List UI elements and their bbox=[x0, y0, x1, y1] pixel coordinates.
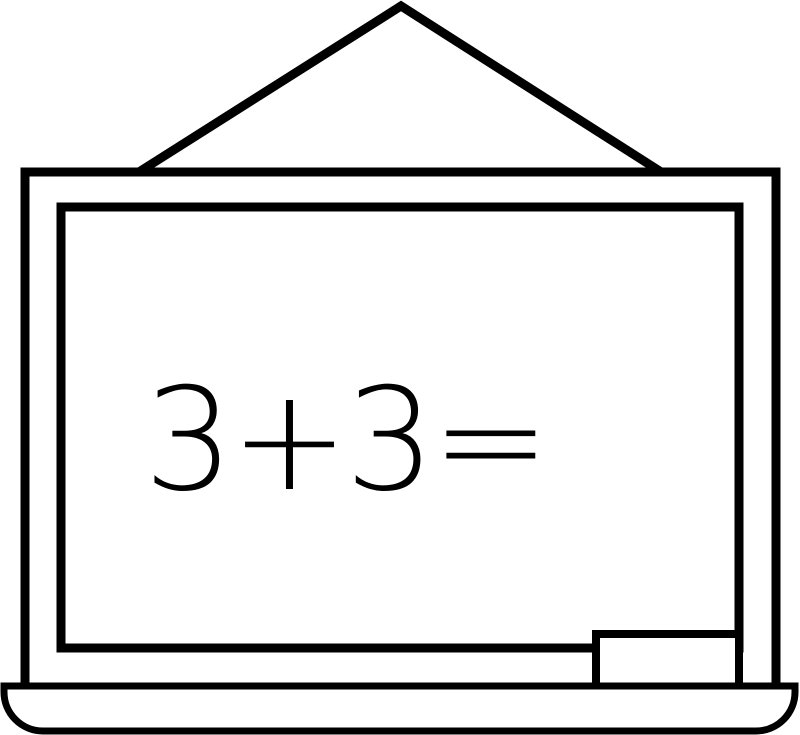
chalk-tray bbox=[4, 686, 795, 731]
chalk-eraser bbox=[596, 634, 739, 689]
equation-text: 3+3= bbox=[144, 358, 547, 523]
chalkboard-illustration: 3+3= bbox=[0, 0, 800, 735]
chalkboard-drawing: 3+3= bbox=[0, 0, 800, 735]
roof-triangle bbox=[131, 6, 669, 177]
